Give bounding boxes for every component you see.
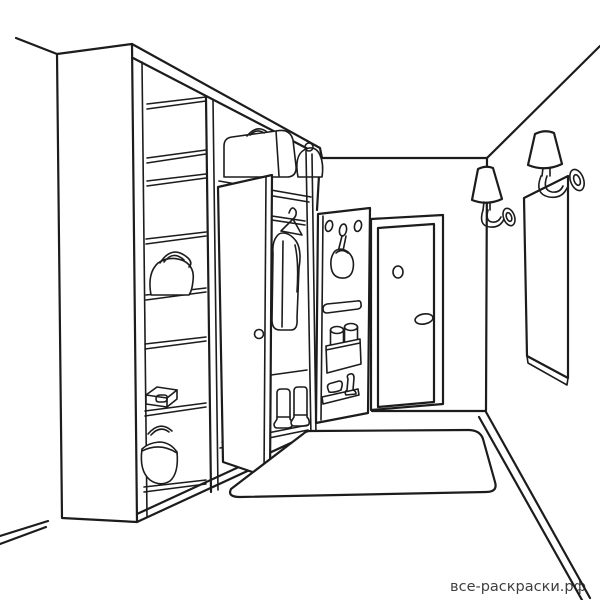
boot xyxy=(274,389,292,428)
lamp-shade xyxy=(472,167,502,203)
organizer-panel xyxy=(316,208,370,423)
lamp-shade xyxy=(528,131,562,168)
jug xyxy=(150,252,193,295)
watermark-text: все-раскраски.рф xyxy=(450,579,586,595)
wall-mount xyxy=(567,167,587,192)
coloring-page: все-раскраски.рф xyxy=(0,0,600,600)
entrance-door xyxy=(371,215,443,410)
baseboard-right xyxy=(479,417,582,600)
baseboard-right xyxy=(486,412,590,598)
door-panel xyxy=(378,224,434,407)
boot xyxy=(291,387,309,426)
suitcase xyxy=(224,129,296,177)
shoe-shelf xyxy=(271,370,307,375)
tall-cabinet xyxy=(57,44,137,522)
hallway-drawing: все-раскраски.рф xyxy=(0,0,600,600)
mirror xyxy=(524,176,568,385)
wall-mount xyxy=(501,207,517,228)
storage-box xyxy=(146,387,177,407)
ceiling-corner-left xyxy=(16,38,57,54)
wall-sconce-left xyxy=(472,167,517,228)
wardrobe-door xyxy=(218,175,272,478)
drawing-root: все-раскраски.рф xyxy=(0,38,600,600)
